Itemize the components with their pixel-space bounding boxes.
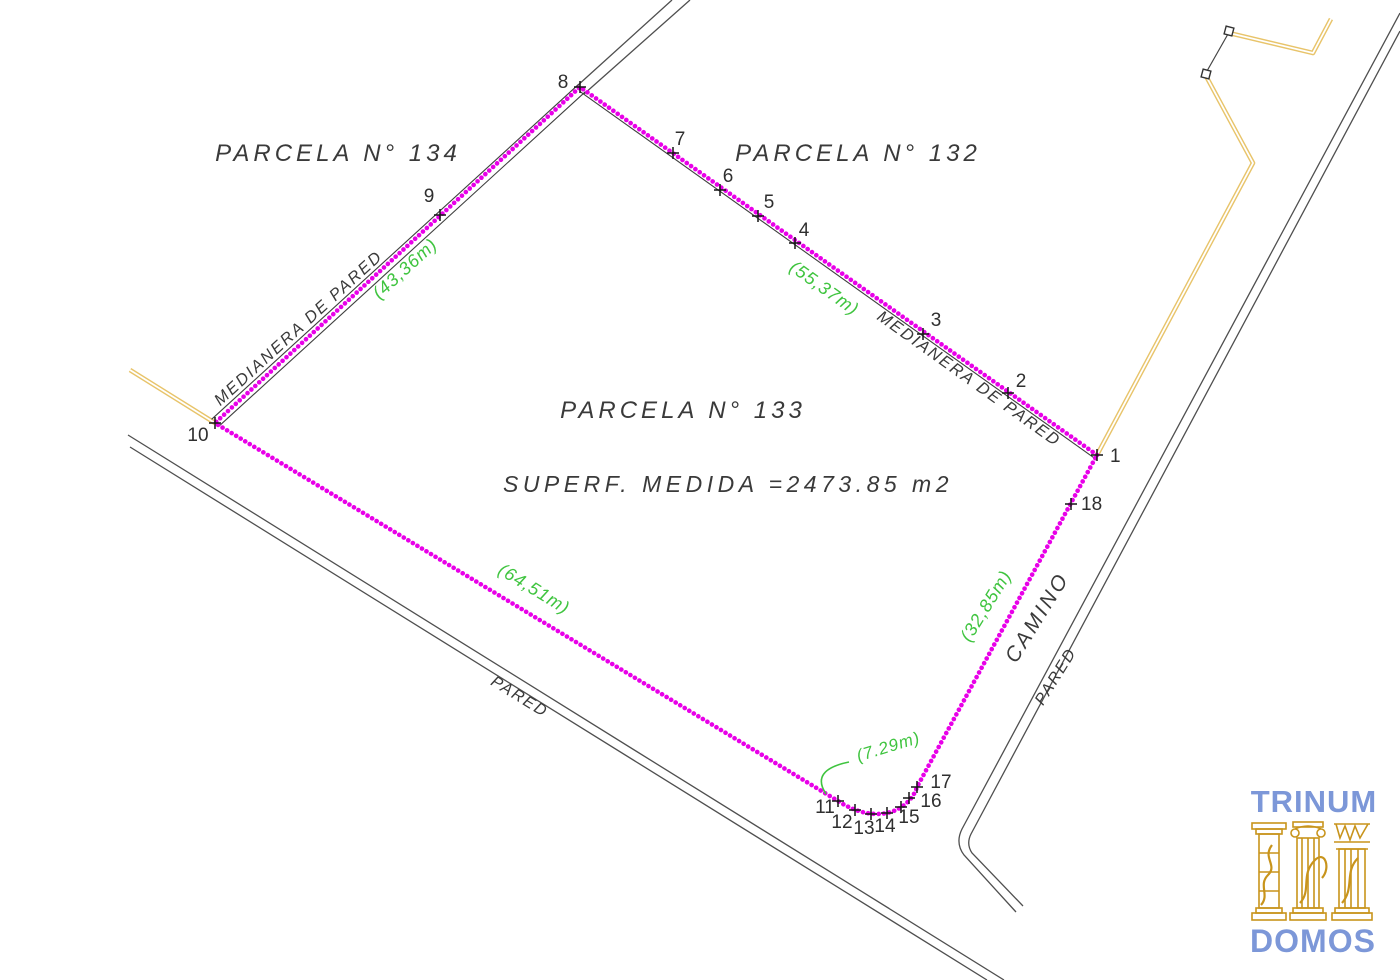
vertex-label-16: 16 — [920, 791, 941, 812]
vertex-label-3: 3 — [931, 310, 942, 331]
vertex-label-8: 8 — [558, 72, 569, 93]
vertex-label-6: 6 — [723, 166, 734, 187]
vertex-label-10: 10 — [187, 425, 208, 446]
vertex-label-17: 17 — [930, 772, 951, 793]
yellow-line-right — [1097, 76, 1253, 455]
vertex-label-9: 9 — [424, 186, 435, 207]
parcel-134-title: PARCELA N° 134 — [215, 140, 461, 167]
pole-connector-line — [1207, 34, 1228, 71]
vertex-label-18: 18 — [1081, 494, 1102, 515]
vertex-label-4: 4 — [799, 220, 810, 241]
vertex-markers-and-labels: 123456789101112131415161718 — [187, 72, 1120, 839]
vertex-label-12: 12 — [831, 812, 852, 833]
road-bottom-left — [128, 435, 1004, 980]
pared-bottom-label: PARED — [488, 673, 551, 721]
measured-area-text: SUPERF. MEDIDA =2473.85 m2 — [503, 471, 953, 497]
cadastral-plan: 123456789101112131415161718 PARCELA N° 1… — [0, 0, 1400, 980]
medianera-left-label: MEDIANERA DE PARED — [211, 247, 387, 409]
yellow-line-top-core — [1229, 19, 1331, 53]
logo-text-bottom: DOMOS — [1250, 923, 1376, 959]
vertex-label-2: 2 — [1016, 371, 1027, 392]
logo-text-top: TRINUM — [1251, 784, 1378, 819]
road-top — [577, 0, 690, 94]
measurement-corner-curve: (7.29m) — [854, 728, 922, 765]
vertex-label-5: 5 — [764, 192, 775, 213]
vertex-label-7: 7 — [675, 129, 686, 150]
vertex-label-14: 14 — [874, 816, 896, 837]
logo: TRINUM DOMOS — [1250, 784, 1377, 959]
vertex-label-13: 13 — [853, 818, 874, 839]
pole-marker-1 — [1224, 26, 1234, 36]
parcel-boundary — [215, 87, 1097, 814]
medianera-right-label: MEDIANERA DE PARED — [874, 307, 1065, 450]
yellow-line-left-core — [130, 370, 215, 423]
measurement-bottom: (64,51m) — [495, 559, 574, 618]
parcel-133-title: PARCELA N° 133 — [560, 397, 806, 424]
road-right-camino — [959, 13, 1400, 912]
vertex-label-15: 15 — [898, 807, 919, 828]
measurement-left: (43,36m) — [369, 234, 442, 303]
curve-measure-arc — [821, 762, 849, 794]
parcel-132-title: PARCELA N° 132 — [735, 140, 981, 167]
utility-lines — [130, 19, 1331, 455]
pole-marker-2 — [1201, 69, 1211, 79]
logo-columns-icon — [1252, 822, 1372, 920]
vertex-label-1: 1 — [1110, 446, 1121, 467]
yellow-line-right-core — [1097, 76, 1253, 455]
measurement-camino-side: (32,85m) — [956, 567, 1015, 645]
